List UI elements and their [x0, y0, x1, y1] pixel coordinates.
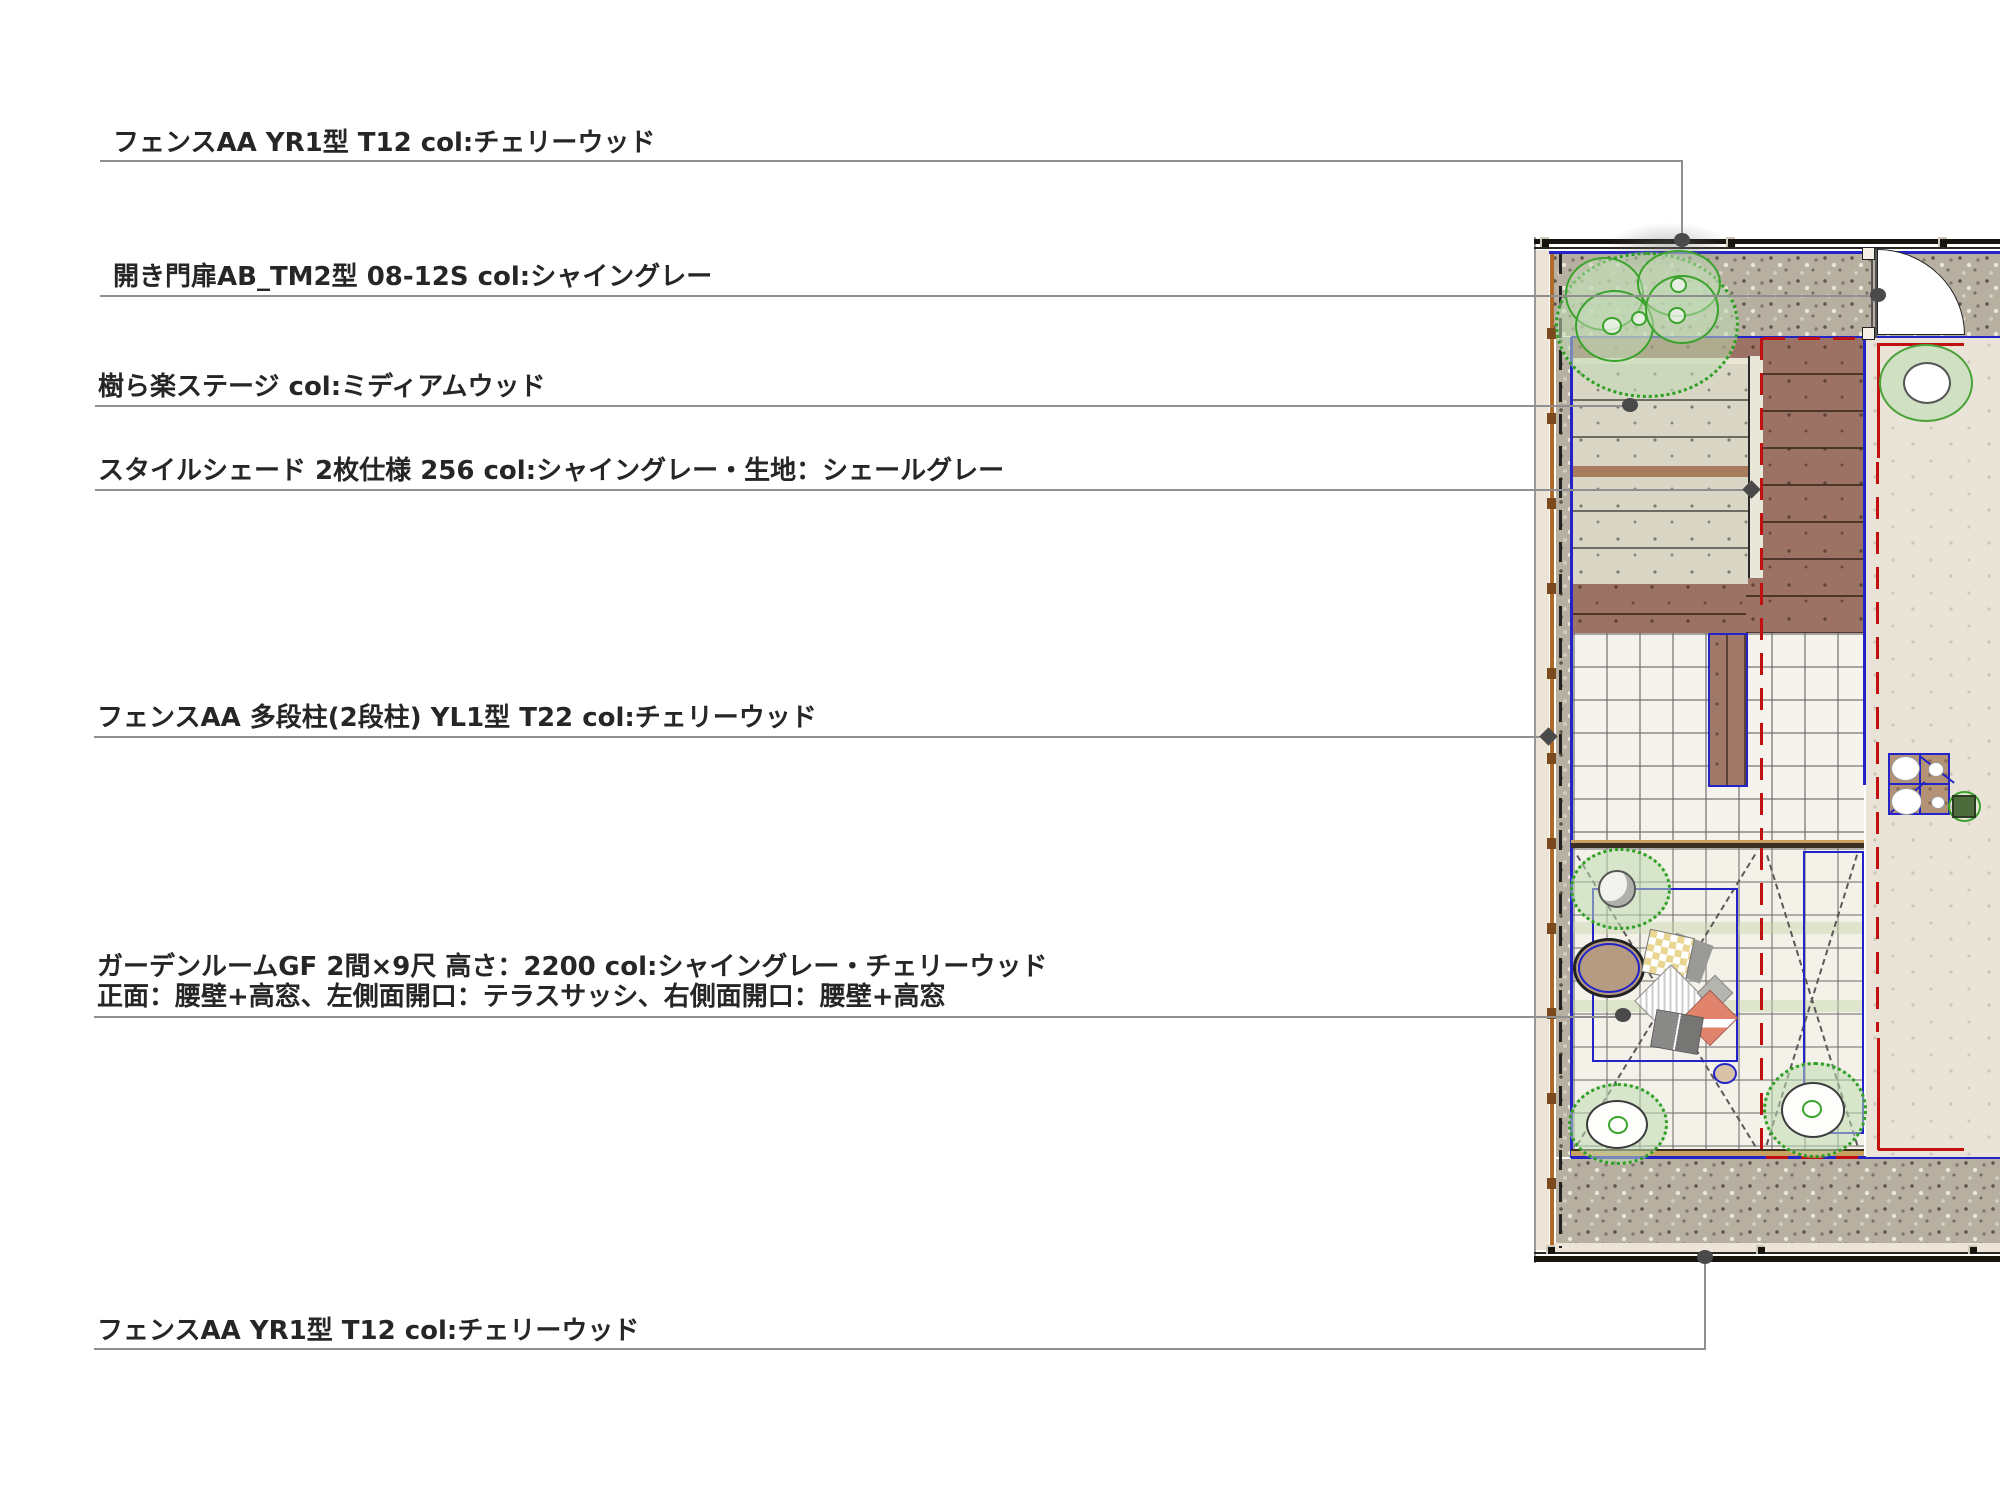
fence-multi-posts — [1547, 254, 1556, 1248]
deck-step-strip-overlay — [1708, 633, 1748, 787]
fence-post — [1938, 237, 1947, 247]
sink-basin — [1891, 756, 1920, 781]
callout-gate-text: 開き門扉AB_TM2型 08-12S col:シャイングレー — [113, 262, 712, 292]
callout-shade: スタイルシェード 2枚仕様 256 col:シャイングレー・生地：シェールグレー — [98, 456, 1004, 486]
house-floor — [1866, 338, 2000, 1157]
fence-post — [1968, 1245, 1977, 1254]
fence-post — [1546, 1245, 1555, 1254]
fence-top-line — [1534, 239, 2000, 244]
tree-trunk-mark — [1670, 277, 1687, 293]
bush-center — [1608, 1116, 1628, 1134]
deck-top-dashed-red — [1763, 337, 1863, 340]
deck-mid-band — [1573, 578, 1746, 633]
leader-fence-bottom-v — [1704, 1258, 1706, 1350]
fence-bottom-line — [1534, 1252, 2000, 1254]
callout-gate: 開き門扉AB_TM2型 08-12S col:シャイングレー — [113, 262, 712, 292]
leader-garden-room-dot — [1615, 1008, 1631, 1022]
callout-garden-room: ガーデンルームGF 2間×9尺 高さ：2200 col:シャイングレー・チェリー… — [97, 952, 1047, 1012]
green-pot — [1952, 795, 1976, 818]
leader-gate-dot — [1870, 288, 1886, 302]
leader-fence-top-v — [1681, 160, 1683, 240]
sink-hole — [1931, 796, 1945, 809]
leader-garden-room-h — [94, 1016, 1622, 1018]
small-pot-symbol — [1713, 1063, 1737, 1084]
fence-post — [1540, 237, 1549, 247]
callout-garden-room-text1: ガーデンルームGF 2間×9尺 高さ：2200 col:シャイングレー・チェリー… — [97, 952, 1047, 982]
callout-fence-bottom-text: フェンスAA YR1型 T12 col:チェリーウッド — [97, 1316, 639, 1346]
house-wall-dashed-red — [1876, 462, 1879, 1032]
callout-garden-room-text2: 正面：腰壁+高窓、左側面開口：テラスサッシ、右側面開口：腰壁+高窓 — [97, 982, 1047, 1012]
exterior-plan-drawing: フェンスAA YR1型 T12 col:チェリーウッド 開き門扉AB_TM2型 … — [0, 0, 2000, 1500]
callout-fence-bottom: フェンスAA YR1型 T12 col:チェリーウッド — [97, 1316, 639, 1346]
stone-ornament — [1598, 870, 1636, 908]
sink-hole — [1928, 762, 1944, 777]
fence-top-line2 — [1534, 247, 2000, 249]
planter-pot-inner-ring — [1578, 943, 1640, 993]
leader-fence-bottom-h — [94, 1348, 1706, 1350]
leader-deck-dot — [1622, 398, 1638, 412]
round-planter-center — [1903, 362, 1951, 404]
callout-fence-multi: フェンスAA 多段柱(2段柱) YL1型 T22 col:チェリーウッド — [97, 703, 817, 733]
leader-shade-h — [95, 489, 1751, 491]
tree-trunk-mark — [1631, 311, 1647, 326]
shade-cross-bar — [1573, 466, 1748, 477]
fence-bottom-line2 — [1534, 1256, 2000, 1262]
sink-basin — [1891, 788, 1922, 815]
callout-fence-multi-text: フェンスAA 多段柱(2段柱) YL1型 T22 col:チェリーウッド — [97, 703, 817, 733]
leader-fence-bottom-dot — [1697, 1250, 1713, 1264]
callout-shade-text: スタイルシェード 2枚仕様 256 col:シャイングレー・生地：シェールグレー — [98, 456, 1004, 486]
leader-gate-h — [100, 295, 1878, 297]
furniture-grey-pair — [1650, 1009, 1704, 1055]
shade-bracket-top-v — [1877, 343, 1880, 458]
deck-right-border — [1863, 338, 1866, 785]
shade-bracket-bottom-v — [1877, 1038, 1880, 1150]
shade-bracket-bottom-h — [1878, 1148, 1964, 1151]
callout-fence-top-text: フェンスAA YR1型 T12 col:チェリーウッド — [113, 128, 655, 158]
boundary-dashed-line — [1559, 254, 1562, 1248]
fence-post — [1756, 1245, 1765, 1254]
leader-fence-top-dot — [1674, 233, 1690, 247]
bush-center — [1802, 1100, 1822, 1118]
leader-deck-h — [95, 405, 1631, 407]
tree-trunk-mark — [1602, 317, 1622, 335]
callout-deck-text: 樹ら楽ステージ col:ミディアムウッド — [98, 372, 545, 402]
leader-fence-multi-h — [94, 736, 1546, 738]
gravel-bottom-band — [1556, 1159, 2000, 1243]
callout-fence-top: フェンスAA YR1型 T12 col:チェリーウッド — [113, 128, 655, 158]
gate-post — [1862, 327, 1875, 340]
callout-deck: 樹ら楽ステージ col:ミディアムウッド — [98, 372, 545, 402]
tree-trunk-mark — [1668, 307, 1686, 324]
gate-post — [1862, 247, 1875, 260]
leader-fence-top-h — [100, 160, 1682, 162]
